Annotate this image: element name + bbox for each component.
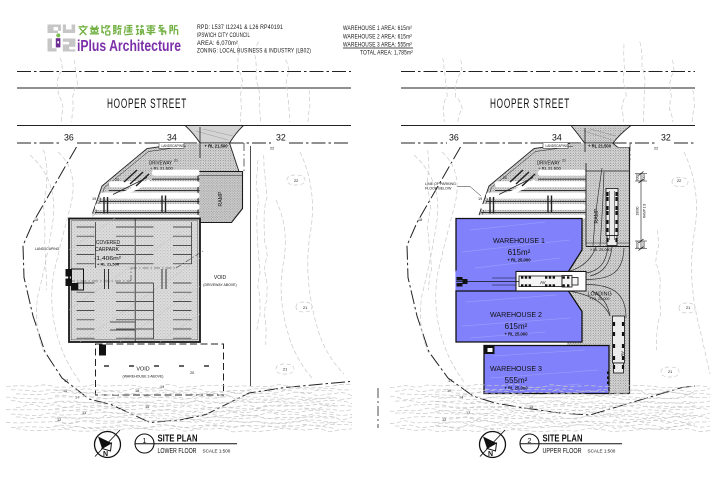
svg-text:AREA: 6,070m²: AREA: 6,070m² <box>197 40 238 47</box>
svg-text:AV: AV <box>540 280 546 285</box>
svg-text:LANDSCAPING: LANDSCAPING <box>35 247 60 251</box>
svg-text:615m²: 615m² <box>508 248 531 257</box>
svg-text:555m²: 555m² <box>505 376 528 385</box>
svg-text:SITE PLAN: SITE PLAN <box>158 434 198 445</box>
svg-text:LOWER FLOOR: LOWER FLOOR <box>158 446 197 455</box>
svg-text:RAMP: RAMP <box>218 191 224 207</box>
svg-text:WAREHOUSE 1 AREA: 615m²: WAREHOUSE 1 AREA: 615m² <box>343 25 412 32</box>
svg-text:21: 21 <box>668 370 672 374</box>
svg-text:18: 18 <box>135 389 139 393</box>
svg-text:3000: 3000 <box>642 174 646 181</box>
svg-text:CARPARK: CARPARK <box>95 247 119 253</box>
svg-text:32: 32 <box>661 133 671 143</box>
svg-text:N: N <box>488 451 493 458</box>
svg-text:+ RL 25,000: + RL 25,000 <box>590 248 611 252</box>
svg-text:34: 34 <box>552 133 562 143</box>
svg-text:21: 21 <box>562 159 566 163</box>
svg-text:+ RL 25,000: + RL 25,000 <box>589 297 610 301</box>
svg-text:34: 34 <box>167 133 177 143</box>
svg-text:iPlus Architecture: iPlus Architecture <box>77 38 181 55</box>
svg-text:(DRIVEWAY ABOVE): (DRIVEWAY ABOVE) <box>203 283 236 287</box>
svg-text:21: 21 <box>303 306 307 310</box>
svg-text:36: 36 <box>64 133 74 143</box>
svg-text:WAREHOUSE 2: WAREHOUSE 2 <box>490 310 542 319</box>
svg-text:18: 18 <box>34 218 38 222</box>
svg-text:COVERED: COVERED <box>96 240 120 246</box>
svg-text:+ RL 25,000: + RL 25,000 <box>507 258 531 263</box>
svg-text:+ RL 25,000: + RL 25,000 <box>504 332 528 337</box>
svg-text:TOTAL AREA: 1,785m²: TOTAL AREA: 1,785m² <box>360 50 413 57</box>
svg-text:+ RL 25,000: + RL 25,000 <box>504 386 528 391</box>
svg-text:22: 22 <box>677 179 681 183</box>
svg-text:LANDSCAPING: LANDSCAPING <box>162 144 185 148</box>
svg-text:SITE PLAN: SITE PLAN <box>543 434 583 445</box>
svg-text:WAREHOUSE 3 AREA: 555m²: WAREHOUSE 3 AREA: 555m² <box>343 42 412 49</box>
svg-text:WAREHOUSE 1: WAREHOUSE 1 <box>493 236 545 245</box>
svg-text:20: 20 <box>115 178 119 182</box>
svg-text:SCALE 1:500: SCALE 1:500 <box>588 449 616 454</box>
svg-text:20: 20 <box>503 176 507 180</box>
svg-text:+ RL 21,500: + RL 21,500 <box>588 144 612 149</box>
svg-text:RAMP 1:8: RAMP 1:8 <box>643 204 647 219</box>
svg-text:+ RL 21,500: + RL 21,500 <box>205 144 229 149</box>
svg-text:AV: AV <box>620 351 625 357</box>
svg-text:3000: 3000 <box>642 241 646 248</box>
svg-text:21: 21 <box>174 159 178 163</box>
svg-text:36: 36 <box>449 133 459 143</box>
svg-text:22: 22 <box>294 179 298 183</box>
svg-text:19: 19 <box>478 197 482 201</box>
svg-text:615m²: 615m² <box>505 322 528 331</box>
svg-text:19: 19 <box>92 197 96 201</box>
svg-text:HOOPER STREET: HOOPER STREET <box>490 96 570 111</box>
svg-text:LANDSCAPING: LANDSCAPING <box>546 144 569 148</box>
svg-text:3000: 3000 <box>636 241 640 248</box>
svg-text:17: 17 <box>64 379 68 383</box>
svg-text:3000: 3000 <box>636 174 640 181</box>
svg-text:VOID: VOID <box>136 367 149 373</box>
svg-text:SCALE 1:500: SCALE 1:500 <box>203 449 231 454</box>
svg-text:18: 18 <box>418 218 422 222</box>
svg-text:IPSWICH CITY COUNCIL: IPSWICH CITY COUNCIL <box>197 32 250 39</box>
svg-text:20: 20 <box>190 371 194 375</box>
svg-text:ZONING: LOCAL BUSINESS & INDUS: ZONING: LOCAL BUSINESS & INDUSTRY (LB02) <box>197 48 311 55</box>
svg-text:VOID: VOID <box>214 275 227 281</box>
svg-text:22: 22 <box>270 147 274 151</box>
svg-text:22: 22 <box>654 147 658 151</box>
svg-text:RPD: L537 I12241 & L26 RP40191: RPD: L537 I12241 & L26 RP40191 <box>197 24 283 31</box>
svg-text:21: 21 <box>283 368 287 372</box>
svg-text:HOOPER STREET: HOOPER STREET <box>107 96 187 111</box>
svg-text:+ RL 21,500: + RL 21,500 <box>97 262 120 267</box>
svg-text:12: 12 <box>442 418 446 422</box>
svg-text:N: N <box>103 451 108 458</box>
svg-text:32: 32 <box>276 133 286 143</box>
svg-text:21: 21 <box>686 306 690 310</box>
svg-text:WAREHOUSE 2 AREA: 615m²: WAREHOUSE 2 AREA: 615m² <box>343 34 412 41</box>
svg-text:17: 17 <box>448 379 452 383</box>
svg-text:18000: 18000 <box>636 206 640 215</box>
svg-text:UPPER FLOOR: UPPER FLOOR <box>543 446 582 455</box>
svg-text:(WAREHOUSE 3 ABOVE): (WAREHOUSE 3 ABOVE) <box>123 375 164 379</box>
svg-text:FLOOR BELOW: FLOOR BELOW <box>425 187 452 191</box>
svg-text:WAREHOUSE 3: WAREHOUSE 3 <box>490 364 542 373</box>
